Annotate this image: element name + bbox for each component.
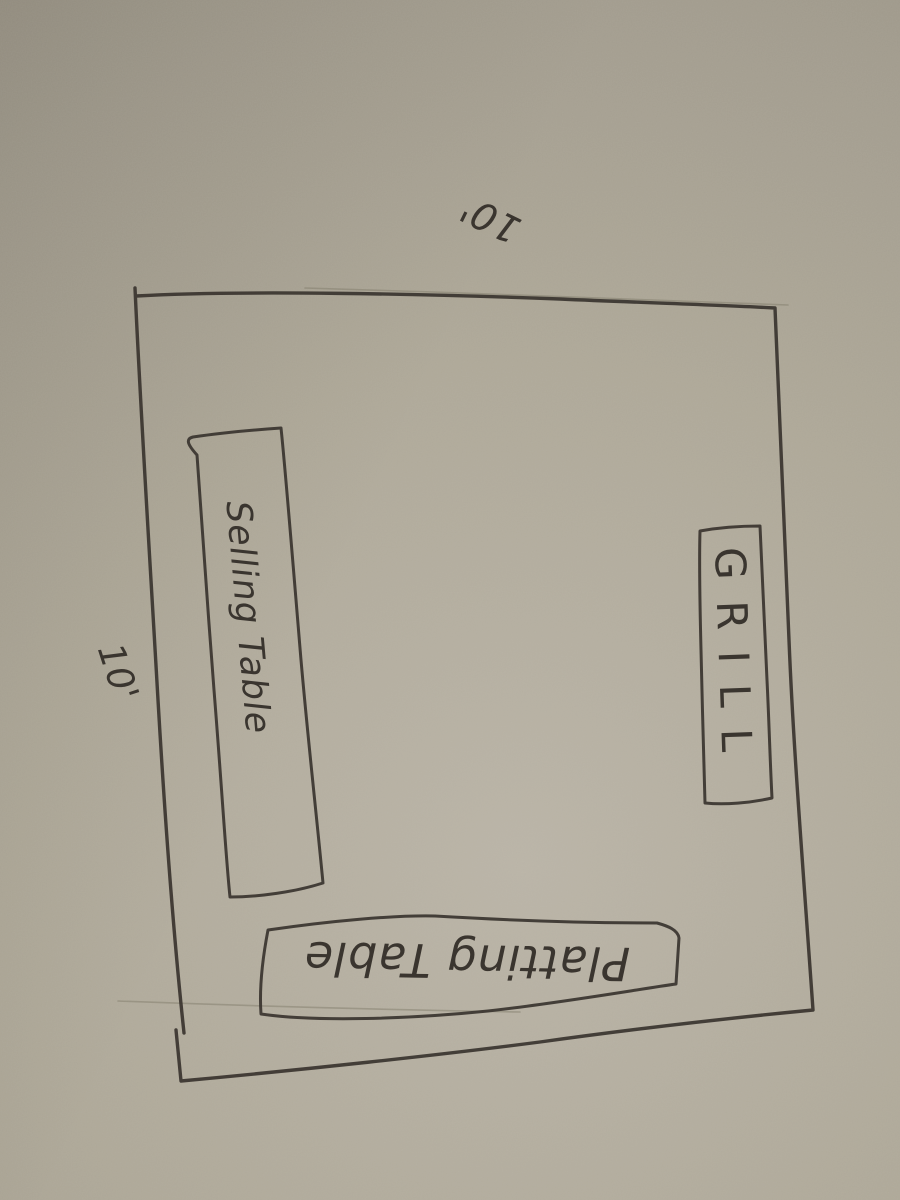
grill-label: GRILL xyxy=(708,539,758,780)
platting-table-label: Platting Table xyxy=(262,934,673,987)
paper-photo: 10' 10' Selling Table GRILL Platting Tab… xyxy=(0,0,900,1200)
